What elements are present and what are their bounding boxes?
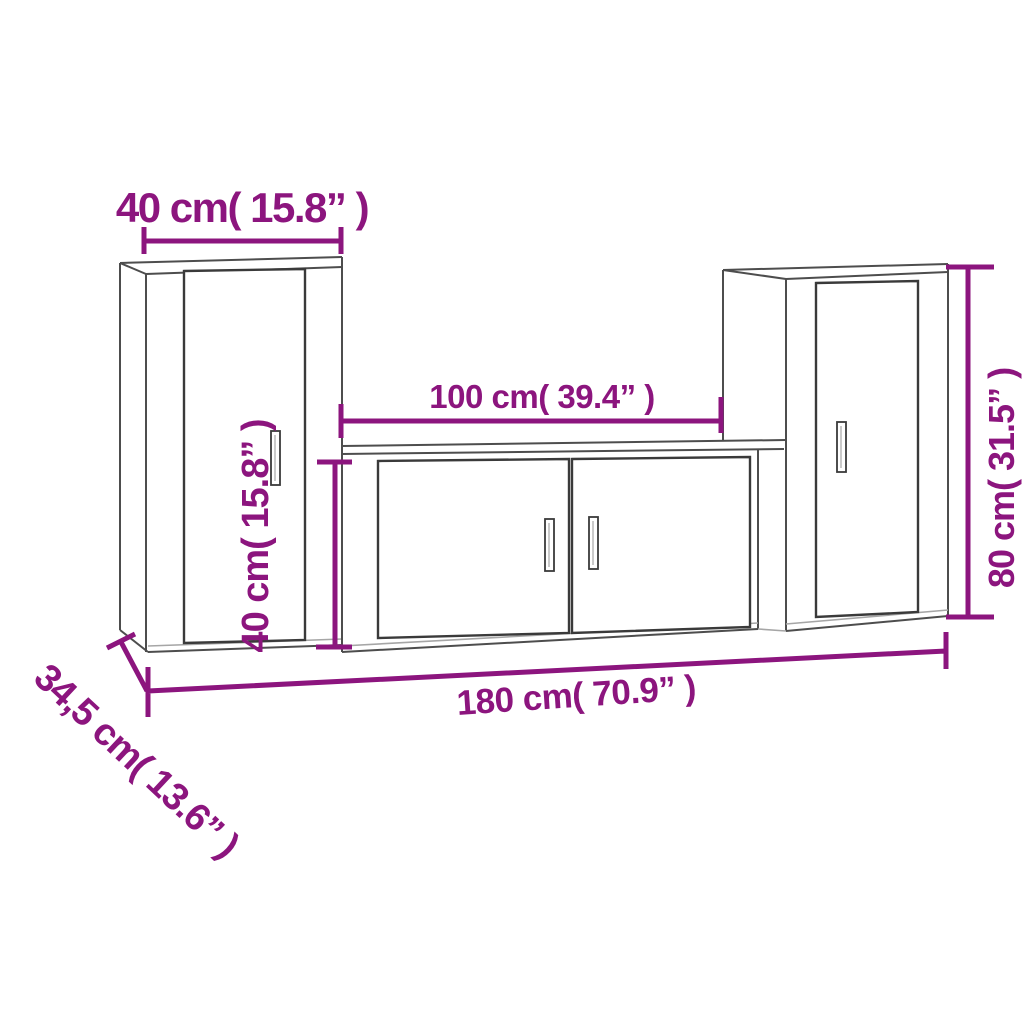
center-cabinet	[342, 440, 786, 652]
left-cabinet	[120, 257, 342, 652]
furniture-dimension-diagram: 40 cm( 15.8” ) 100 cm( 39.4” ) 40 cm( 15…	[0, 0, 1024, 1024]
dimension-top-width: 40 cm( 15.8” )	[116, 184, 368, 254]
center-cabinet-left-handle	[545, 519, 554, 571]
diagram-svg: 40 cm( 15.8” ) 100 cm( 39.4” ) 40 cm( 15…	[0, 0, 1024, 1024]
dimension-center-height-label: 40 cm( 15.8” )	[235, 419, 277, 652]
dimension-right-height-label: 80 cm( 31.5” )	[981, 368, 1022, 588]
center-cabinet-right-handle	[589, 517, 598, 569]
dimension-top-width-label: 40 cm( 15.8” )	[116, 184, 368, 231]
dimension-middle-width: 100 cm( 39.4” )	[341, 378, 721, 438]
dimension-total-width-label: 180 cm( 70.9” )	[455, 668, 697, 723]
right-cabinet-handle	[837, 422, 846, 472]
dimension-right-height: 80 cm( 31.5” )	[946, 267, 1022, 617]
right-cabinet	[723, 264, 948, 631]
dimension-depth: 34,5 cm( 13.6” )	[26, 634, 247, 866]
dimension-middle-width-label: 100 cm( 39.4” )	[429, 378, 654, 415]
right-cabinet-door	[816, 281, 918, 617]
center-cabinet-left-door	[378, 459, 569, 638]
